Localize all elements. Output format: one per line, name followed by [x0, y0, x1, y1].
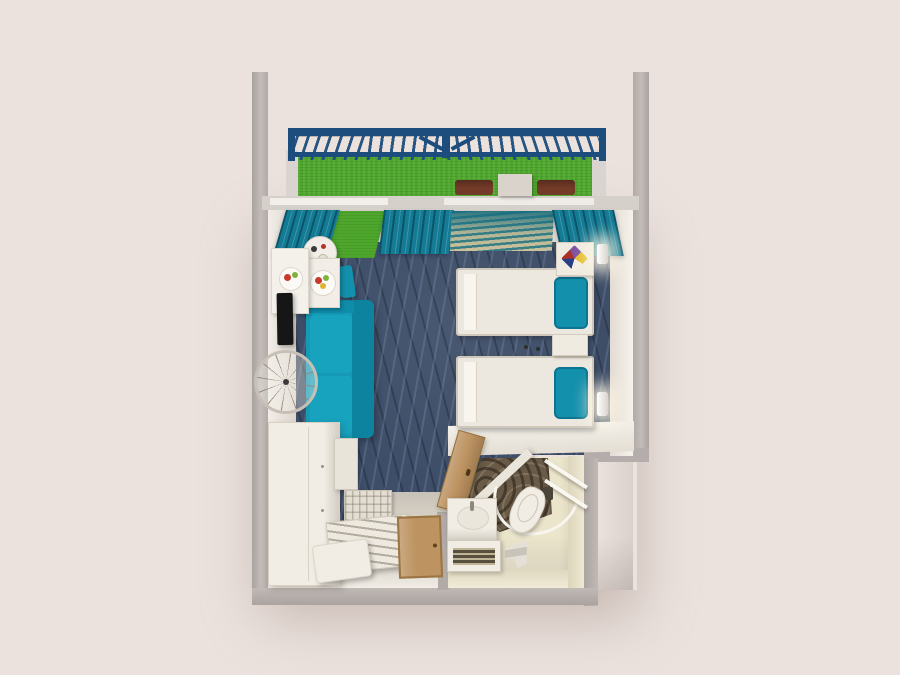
- wall-clock: [254, 350, 318, 414]
- folded-colorful-towels: [561, 245, 588, 272]
- ottoman: [312, 538, 373, 583]
- outer-wall-bottom: [252, 588, 598, 605]
- curtain-middle: [379, 210, 454, 254]
- towel-shelf-unit: [447, 540, 501, 572]
- nightstand-between-beds: [552, 334, 588, 356]
- outer-wall-right-upper: [633, 72, 649, 462]
- teal-sofa: [306, 300, 374, 438]
- sofa-backrest: [352, 300, 374, 438]
- bed-sheet-fold: [464, 362, 477, 422]
- twin-bed-top: [456, 268, 594, 336]
- wall-lamp-lower: [597, 392, 608, 416]
- wall-lamp-upper: [597, 244, 608, 264]
- bathroom-bottom-wall-face: [448, 570, 584, 588]
- bed-footboard-cushion: [554, 367, 588, 419]
- twin-bed-bottom: [456, 356, 594, 428]
- window-sill-highlight: [270, 198, 388, 205]
- railing-post: [288, 128, 295, 161]
- window-wall: [262, 196, 639, 210]
- rolled-towels-slot: [453, 548, 495, 565]
- bed-sheet-fold: [464, 274, 477, 330]
- small-items-between-beds: [524, 345, 542, 351]
- railing-post: [599, 128, 606, 161]
- wardrobe-handle: [321, 509, 324, 512]
- wardrobe-handle: [321, 465, 324, 468]
- fruit-red: [284, 274, 291, 281]
- fruit-yellow: [320, 283, 326, 289]
- corner-nightstand: [556, 242, 594, 276]
- minibar-cabinet: [334, 438, 358, 490]
- sheer-curtain: [450, 211, 554, 251]
- bed-footboard-cushion: [554, 277, 588, 329]
- cup: [311, 246, 317, 252]
- floor-plan-scene: [0, 0, 900, 675]
- entrance-door: [397, 515, 443, 578]
- fruit-green: [323, 275, 329, 281]
- outer-wall-right-lower: [584, 458, 598, 606]
- railing-post: [442, 128, 450, 158]
- sofa-cushion: [310, 315, 352, 373]
- balcony-lounge-chair: [455, 180, 493, 195]
- fruit-green: [292, 272, 298, 278]
- balcony-side-table: [498, 174, 532, 196]
- window-sill-highlight: [444, 198, 594, 205]
- red-item: [321, 244, 326, 249]
- fruit-plate: [310, 270, 336, 296]
- outer-wall-left: [252, 72, 268, 604]
- square-table: [304, 258, 340, 308]
- faucet: [470, 501, 474, 511]
- tv: [277, 293, 294, 345]
- balcony-lounge-chair: [537, 180, 575, 195]
- fruit-plate: [279, 267, 303, 291]
- vanity-sink: [447, 498, 497, 542]
